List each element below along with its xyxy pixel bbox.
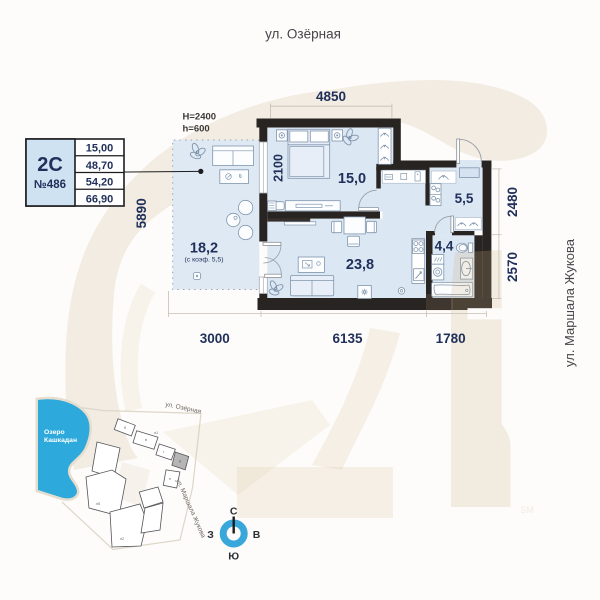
svg-text:4,4: 4,4	[435, 239, 454, 254]
svg-text:6135: 6135	[332, 331, 363, 346]
svg-text:л1: л1	[154, 431, 158, 435]
svg-text:4850: 4850	[316, 89, 346, 104]
svg-text:h=600: h=600	[183, 124, 210, 135]
svg-text:(с коэф. 5,5): (с коэф. 5,5)	[185, 257, 224, 264]
svg-text:5,5: 5,5	[455, 191, 474, 206]
svg-text:ул. Озёрная: ул. Озёрная	[265, 27, 341, 42]
svg-text:5890: 5890	[134, 198, 149, 228]
svg-text:15,0: 15,0	[338, 171, 366, 187]
svg-text:1780: 1780	[436, 331, 466, 346]
svg-text:Кашкадан: Кашкадан	[44, 437, 77, 444]
svg-text:В: В	[253, 529, 261, 541]
svg-text:66,90: 66,90	[86, 193, 114, 205]
svg-text:е: е	[169, 477, 171, 481]
svg-text:в: в	[145, 438, 147, 442]
svg-text:23,8: 23,8	[346, 257, 374, 273]
svg-text:ул. Маршала Жукова: ул. Маршала Жукова	[562, 238, 577, 367]
svg-text:Озеро: Озеро	[44, 429, 65, 436]
svg-text:2100: 2100	[272, 154, 286, 182]
svg-text:2480: 2480	[505, 187, 520, 217]
svg-text:№486: №486	[34, 179, 66, 191]
svg-text:SM: SM	[520, 505, 534, 515]
svg-text:18,2: 18,2	[190, 241, 218, 257]
svg-text:2С: 2С	[37, 154, 63, 176]
svg-text:2570: 2570	[505, 252, 520, 282]
svg-text:л5: л5	[96, 502, 100, 506]
svg-text:48,70: 48,70	[86, 160, 114, 172]
svg-text:л2: л2	[120, 537, 124, 541]
svg-text:54,20: 54,20	[86, 177, 114, 189]
svg-text:З: З	[207, 529, 214, 541]
svg-text:15,00: 15,00	[86, 143, 114, 155]
svg-text:H=2400: H=2400	[183, 112, 217, 123]
svg-text:3000: 3000	[200, 331, 230, 346]
svg-text:С: С	[230, 506, 238, 518]
svg-text:Ю: Ю	[228, 551, 239, 563]
